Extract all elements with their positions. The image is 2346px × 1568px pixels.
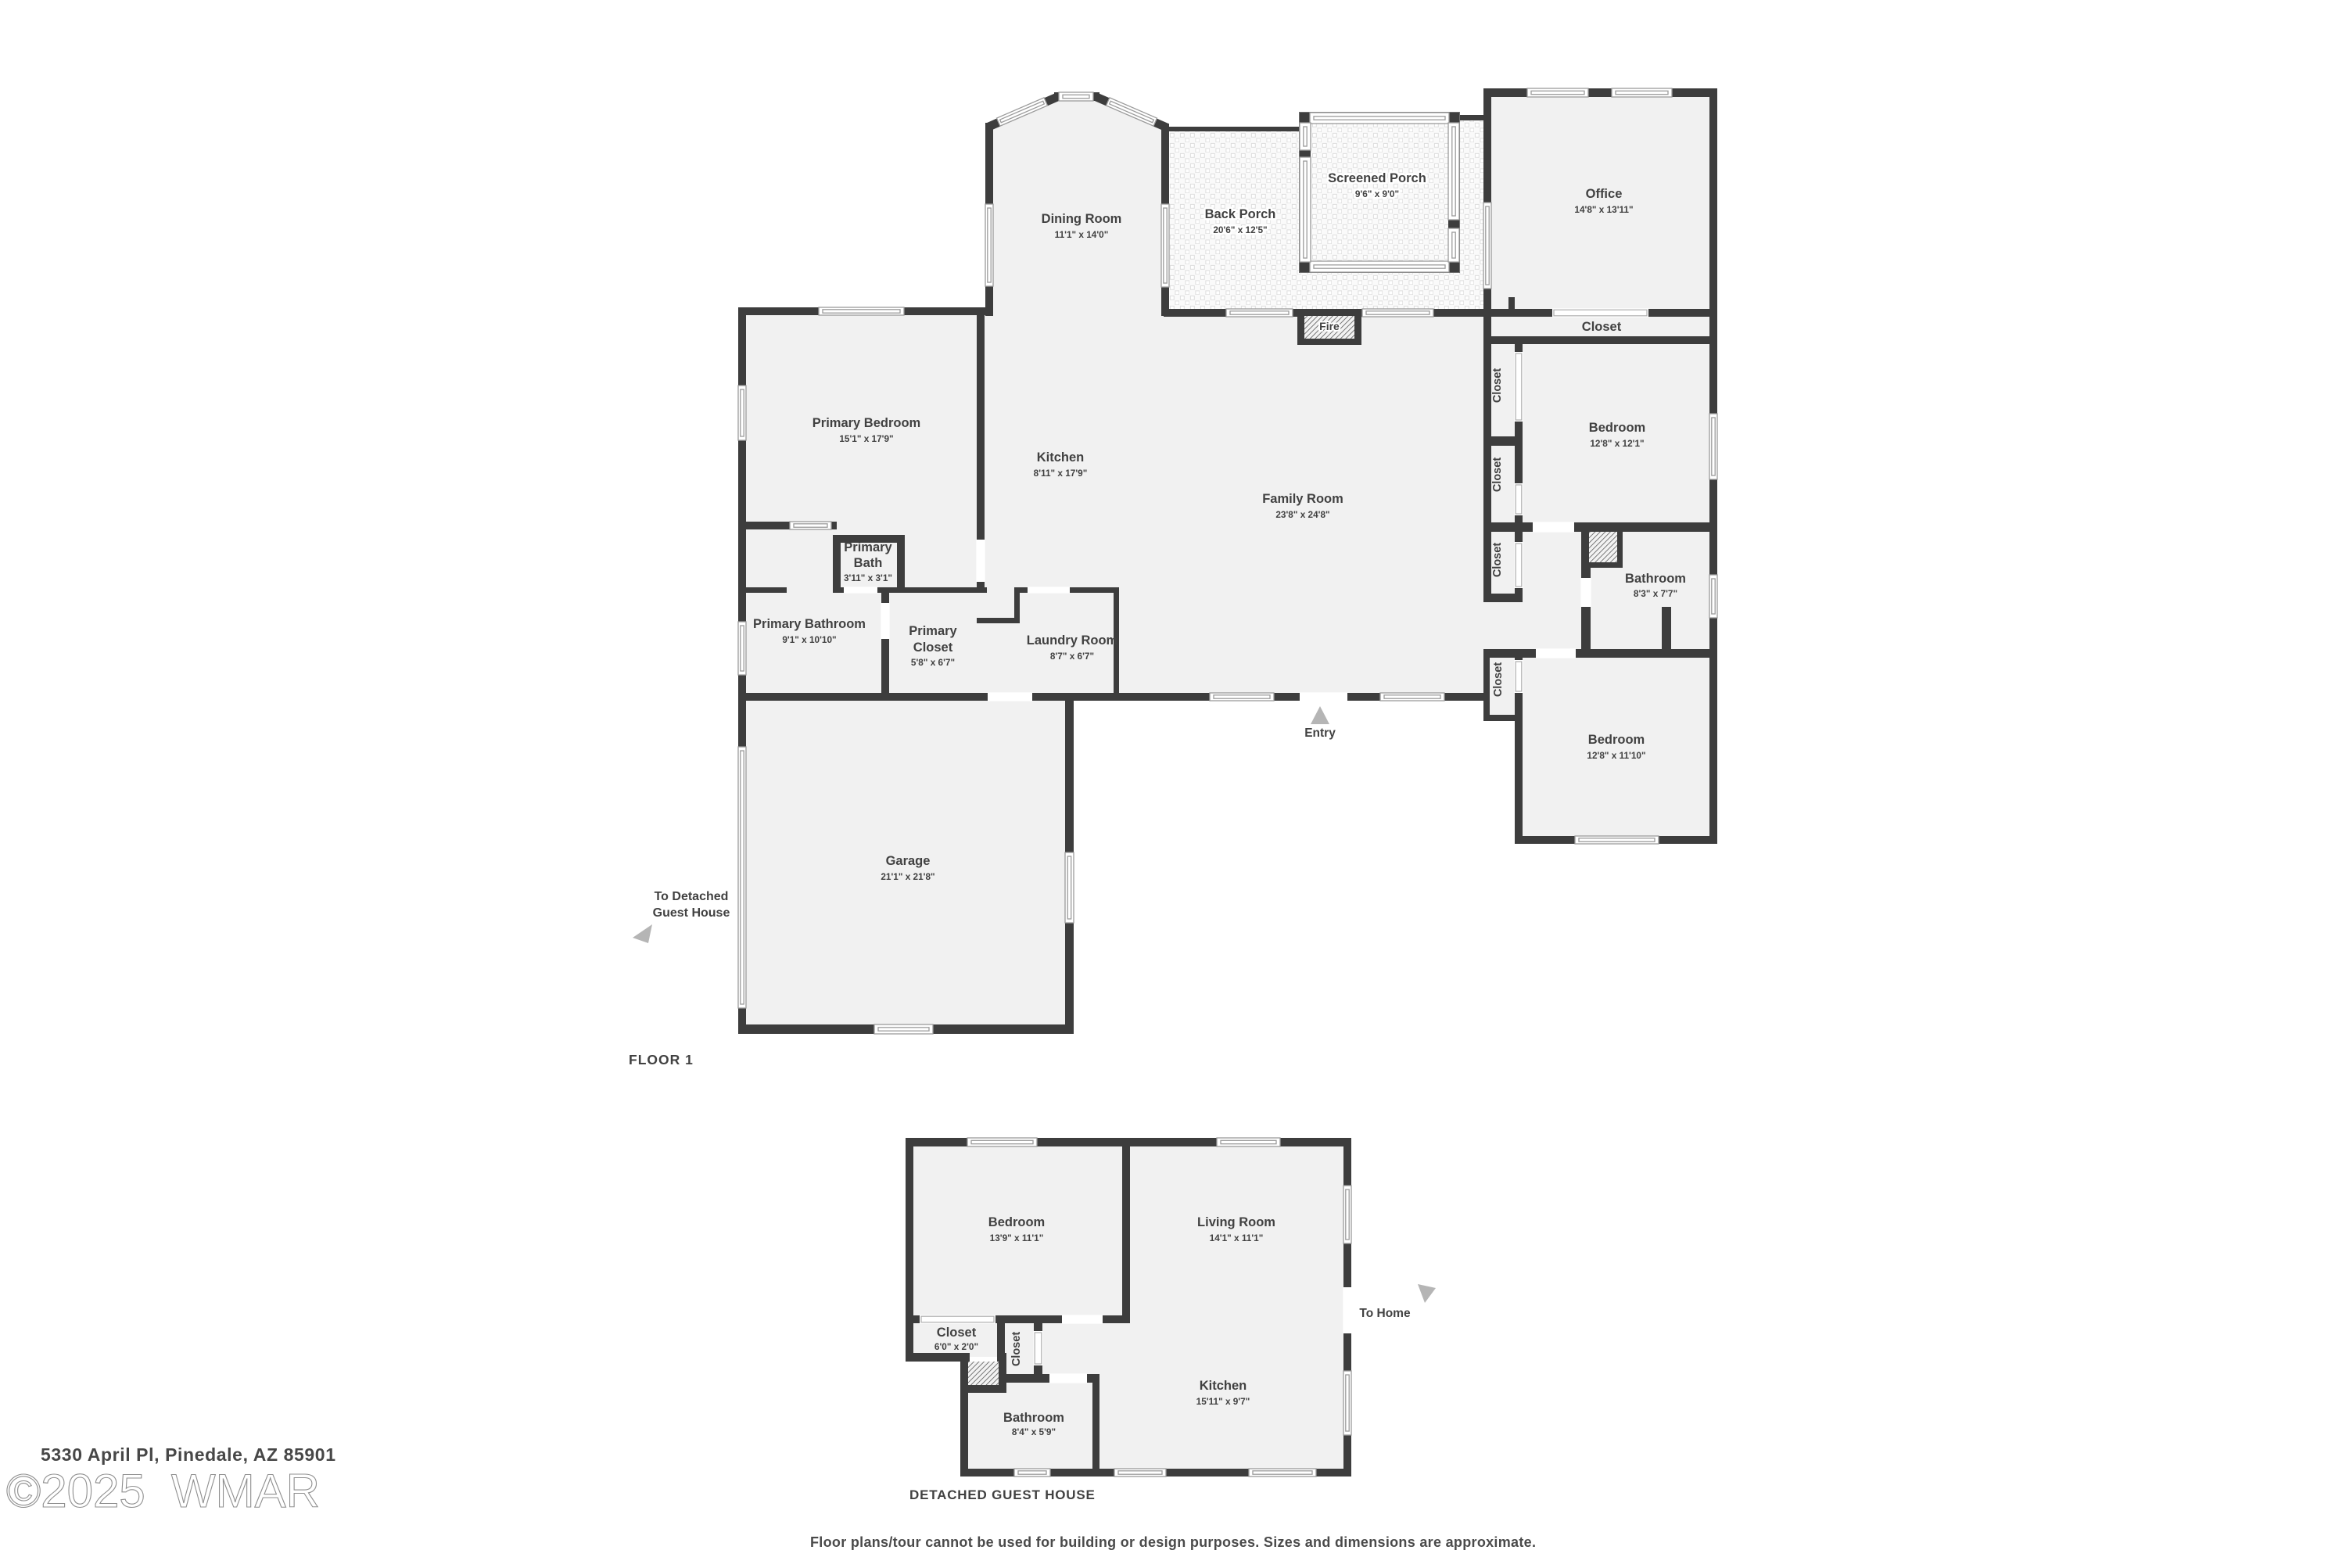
svg-text:Bathroom: Bathroom	[1003, 1411, 1064, 1425]
svg-text:Laundry Room: Laundry Room	[1027, 633, 1117, 648]
svg-text:To Home: To Home	[1359, 1307, 1411, 1320]
svg-text:8'11" x 17'9": 8'11" x 17'9"	[1034, 468, 1088, 479]
svg-text:To Detached: To Detached	[655, 890, 729, 903]
svg-text:Screened Porch: Screened Porch	[1328, 171, 1426, 185]
svg-text:Back Porch: Back Porch	[1205, 207, 1276, 221]
svg-text:Closet: Closet	[1491, 543, 1504, 577]
svg-text:Bath: Bath	[854, 556, 883, 570]
svg-text:Primary Bathroom: Primary Bathroom	[753, 617, 866, 631]
svg-text:6'0" x 2'0": 6'0" x 2'0"	[934, 1341, 978, 1352]
svg-text:8'3" x 7'7": 8'3" x 7'7"	[1634, 588, 1677, 599]
svg-text:Kitchen: Kitchen	[1037, 450, 1085, 465]
svg-text:Bathroom: Bathroom	[1625, 572, 1686, 586]
svg-text:14'1" x 11'1": 14'1" x 11'1"	[1210, 1233, 1264, 1243]
svg-text:11'1" x 14'0": 11'1" x 14'0"	[1055, 229, 1109, 240]
svg-text:Kitchen: Kitchen	[1200, 1379, 1247, 1393]
svg-text:©2025 WMAR: ©2025 WMAR	[6, 1465, 320, 1517]
svg-text:Closet: Closet	[1010, 1332, 1023, 1366]
svg-text:3'11" x 3'1": 3'11" x 3'1"	[844, 572, 892, 583]
svg-text:Bedroom: Bedroom	[988, 1215, 1045, 1229]
svg-text:8'7" x 6'7": 8'7" x 6'7"	[1050, 651, 1094, 662]
svg-text:5'8" x 6'7": 5'8" x 6'7"	[911, 657, 955, 668]
svg-text:15'11" x 9'7": 15'11" x 9'7"	[1196, 1396, 1250, 1407]
svg-text:5330 April Pl, Pinedale, AZ 85: 5330 April Pl, Pinedale, AZ 85901	[41, 1444, 335, 1465]
svg-text:9'6" x 9'0": 9'6" x 9'0"	[1355, 188, 1399, 199]
svg-text:Closet: Closet	[1491, 457, 1504, 492]
svg-text:Garage: Garage	[886, 854, 931, 868]
svg-text:Dining Room: Dining Room	[1042, 212, 1122, 226]
svg-text:Primary Bedroom: Primary Bedroom	[812, 416, 920, 430]
svg-text:Family Room: Family Room	[1262, 492, 1343, 506]
svg-text:Bedroom: Bedroom	[1589, 421, 1645, 435]
svg-text:Bedroom: Bedroom	[1588, 733, 1645, 747]
svg-text:Closet: Closet	[1491, 368, 1504, 403]
svg-text:Closet: Closet	[1582, 320, 1622, 334]
svg-text:FLOOR 1: FLOOR 1	[629, 1052, 694, 1067]
svg-text:Guest House: Guest House	[653, 906, 730, 920]
svg-text:13'9" x 11'1": 13'9" x 11'1"	[990, 1233, 1044, 1243]
svg-text:15'1" x 17'9": 15'1" x 17'9"	[839, 433, 893, 444]
svg-text:8'4" x 5'9": 8'4" x 5'9"	[1012, 1426, 1056, 1437]
svg-text:Closet: Closet	[913, 640, 953, 655]
svg-text:12'8" x 12'1": 12'8" x 12'1"	[1590, 438, 1644, 449]
svg-text:Fire: Fire	[1319, 320, 1340, 332]
svg-text:DETACHED GUEST HOUSE: DETACHED GUEST HOUSE	[909, 1487, 1096, 1502]
svg-text:21'1" x 21'8": 21'1" x 21'8"	[881, 871, 934, 882]
svg-text:9'1" x 10'10": 9'1" x 10'10"	[782, 634, 836, 645]
svg-text:Living Room: Living Room	[1197, 1215, 1275, 1229]
svg-text:Closet: Closet	[937, 1326, 977, 1340]
svg-text:23'8" x 24'8": 23'8" x 24'8"	[1275, 509, 1329, 520]
svg-text:Primary: Primary	[909, 624, 957, 638]
svg-text:Floor plans/tour cannot be use: Floor plans/tour cannot be used for buil…	[810, 1534, 1536, 1550]
svg-text:14'8" x 13'11": 14'8" x 13'11"	[1574, 204, 1633, 215]
svg-text:12'8" x 11'10": 12'8" x 11'10"	[1587, 750, 1645, 761]
svg-text:Closet: Closet	[1492, 662, 1505, 697]
svg-text:20'6" x 12'5": 20'6" x 12'5"	[1213, 224, 1267, 235]
svg-text:Primary: Primary	[844, 540, 892, 554]
svg-text:Office: Office	[1586, 187, 1623, 201]
svg-text:Entry: Entry	[1304, 727, 1336, 740]
